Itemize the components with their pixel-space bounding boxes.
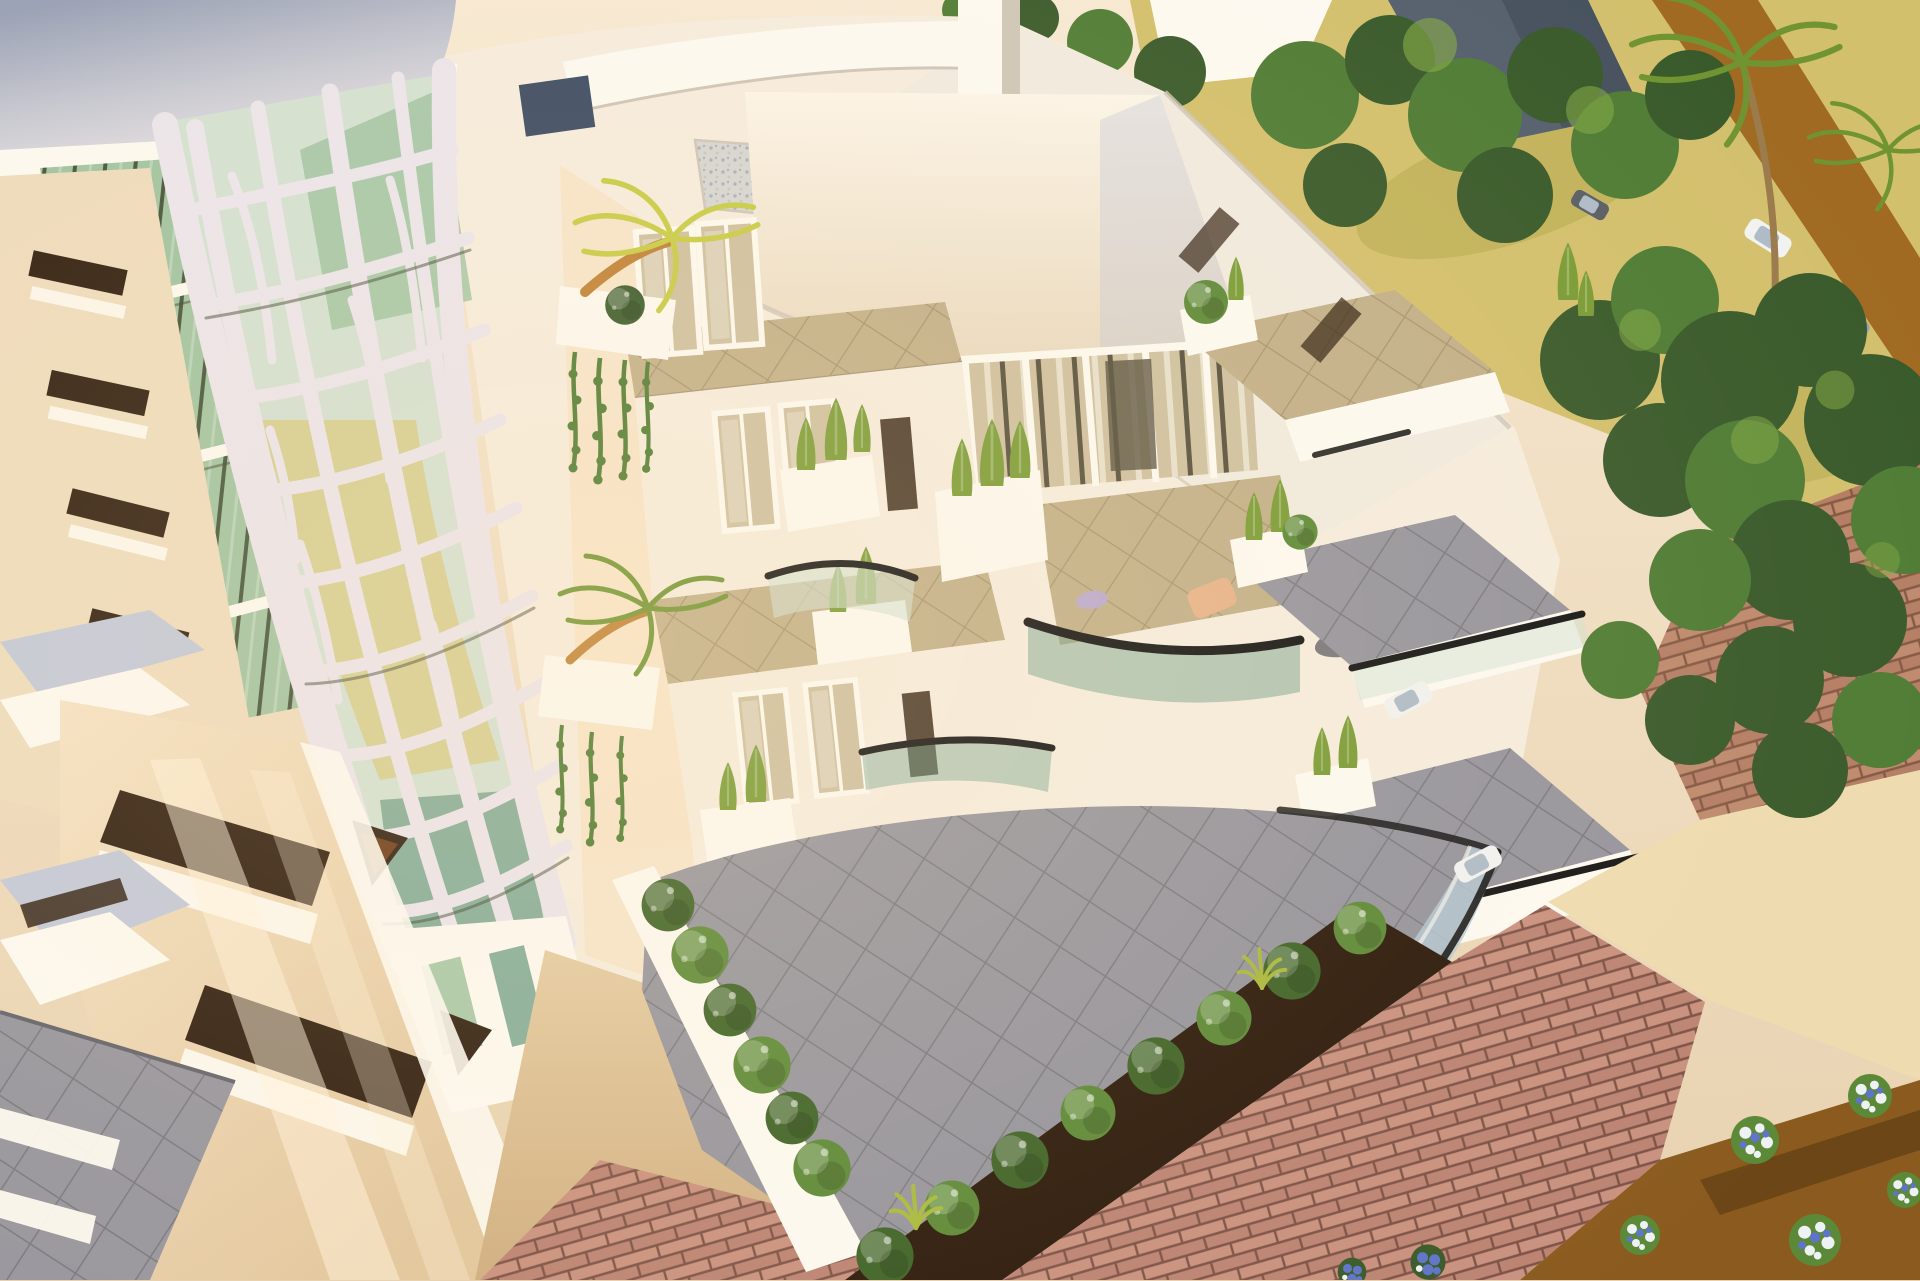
architectural-render: Aerial 3D architectural rendering of a m… [0,0,1920,1280]
render-canvas [0,0,1920,1280]
page: { "image": { "kind": "3d-architectural-e… [0,0,1920,1280]
lighting [0,0,1920,1280]
sunlight-glow [0,0,1920,1280]
